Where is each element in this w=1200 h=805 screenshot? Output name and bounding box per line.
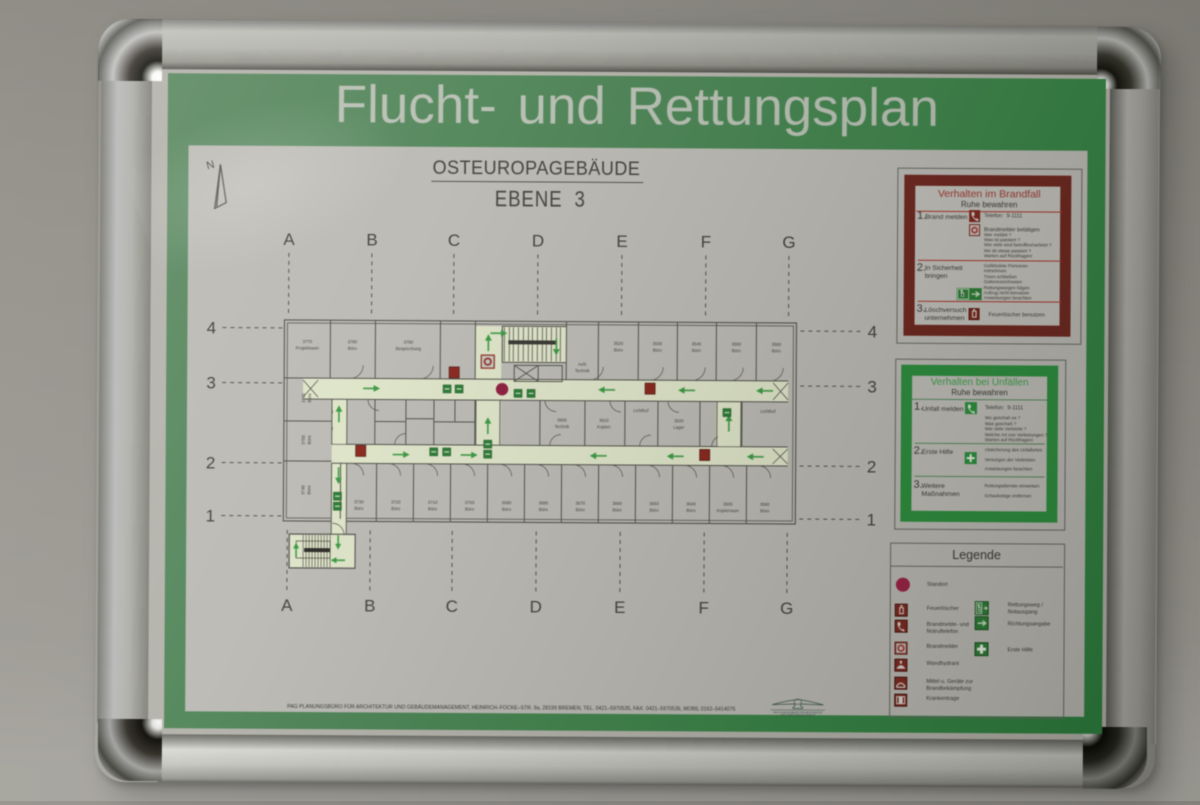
svg-text:3700: 3700 xyxy=(465,500,475,505)
svg-text:B: B xyxy=(366,230,377,249)
svg-text:3550: 3550 xyxy=(732,342,742,347)
svg-text:Lager: Lager xyxy=(673,425,685,430)
svg-text:Büro: Büro xyxy=(614,347,624,352)
svg-text:Büro: Büro xyxy=(391,506,401,511)
svg-text:3710: 3710 xyxy=(428,500,438,505)
svg-text:Projektraum: Projektraum xyxy=(296,345,320,350)
svg-text:2: 2 xyxy=(867,457,877,476)
svg-text:Besprechung: Besprechung xyxy=(396,346,422,351)
svg-text:Kopien: Kopien xyxy=(597,424,611,429)
svg-text:N: N xyxy=(205,159,216,173)
svg-text:Lichthof: Lichthof xyxy=(760,409,776,414)
svg-text:E: E xyxy=(616,232,627,251)
svg-text:3660: 3660 xyxy=(612,501,622,506)
svg-text:3670: 3670 xyxy=(575,501,585,506)
svg-text:Büro: Büro xyxy=(307,393,312,403)
svg-text:1: 1 xyxy=(867,510,877,529)
svg-text:B: B xyxy=(364,596,375,615)
svg-text:Büro: Büro xyxy=(772,348,782,353)
svg-text:Technik: Technik xyxy=(575,368,590,373)
svg-text:3: 3 xyxy=(206,373,216,392)
svg-text:Büro: Büro xyxy=(686,508,696,513)
svg-text:3730: 3730 xyxy=(354,499,364,504)
svg-text:3690: 3690 xyxy=(502,500,512,505)
svg-text:3680: 3680 xyxy=(539,500,549,505)
svg-text:Büro: Büro xyxy=(307,435,312,445)
svg-text:3770: 3770 xyxy=(303,339,313,344)
svg-text:Büro: Büro xyxy=(428,506,438,511)
svg-text:3610: 3610 xyxy=(599,418,609,423)
svg-text:3740: 3740 xyxy=(300,485,305,495)
svg-text:4: 4 xyxy=(868,322,878,341)
svg-text:2: 2 xyxy=(206,453,216,472)
svg-text:D: D xyxy=(530,597,542,616)
svg-text:Büro: Büro xyxy=(465,507,475,512)
svg-text:3650: 3650 xyxy=(649,501,659,506)
svg-text:E: E xyxy=(614,598,625,617)
svg-text:Kopierraum: Kopierraum xyxy=(717,508,740,513)
svg-text:3580: 3580 xyxy=(760,502,770,507)
svg-text:Aufz: Aufz xyxy=(578,362,587,367)
svg-text:3520: 3520 xyxy=(614,341,624,346)
svg-text:UND GEBÄUDEMANAGEMENT: UND GEBÄUDEMANAGEMENT xyxy=(780,714,815,717)
svg-text:Büro: Büro xyxy=(576,507,586,512)
svg-text:3720: 3720 xyxy=(391,500,401,505)
svg-text:G: G xyxy=(780,599,793,618)
svg-text:3: 3 xyxy=(867,377,877,396)
svg-text:3750: 3750 xyxy=(301,435,306,445)
svg-text:3790: 3790 xyxy=(404,340,414,345)
svg-text:Büro: Büro xyxy=(539,507,549,512)
svg-text:Büro: Büro xyxy=(613,507,623,512)
svg-text:G: G xyxy=(782,233,795,252)
svg-text:Büro: Büro xyxy=(354,506,364,511)
svg-text:Büro: Büro xyxy=(348,346,358,351)
svg-text:D: D xyxy=(532,231,544,250)
svg-text:1: 1 xyxy=(206,506,216,525)
svg-text:Lichthof: Lichthof xyxy=(633,408,649,413)
svg-text:F: F xyxy=(701,232,712,251)
svg-text:Büro: Büro xyxy=(502,507,512,512)
svg-text:3640: 3640 xyxy=(686,501,696,506)
svg-text:Büro: Büro xyxy=(760,508,770,513)
svg-text:Büro: Büro xyxy=(649,508,659,513)
svg-text:Büro: Büro xyxy=(306,485,311,495)
svg-text:C: C xyxy=(448,231,460,250)
svg-text:3600: 3600 xyxy=(557,418,567,423)
svg-text:F: F xyxy=(699,598,710,617)
svg-text:3780: 3780 xyxy=(348,339,358,344)
svg-text:Büro: Büro xyxy=(692,348,702,353)
svg-text:3540: 3540 xyxy=(692,341,702,346)
svg-text:C: C xyxy=(446,597,458,616)
svg-text:3530: 3530 xyxy=(653,341,663,346)
svg-text:Technik: Technik xyxy=(555,424,570,429)
svg-text:Büro: Büro xyxy=(653,348,663,353)
svg-text:4: 4 xyxy=(207,318,217,337)
svg-text:A: A xyxy=(281,596,293,615)
svg-text:3600: 3600 xyxy=(723,502,733,507)
svg-text:3560: 3560 xyxy=(772,342,782,347)
svg-text:A: A xyxy=(283,230,295,249)
svg-text:Büro: Büro xyxy=(732,348,742,353)
svg-text:3620: 3620 xyxy=(674,418,684,423)
